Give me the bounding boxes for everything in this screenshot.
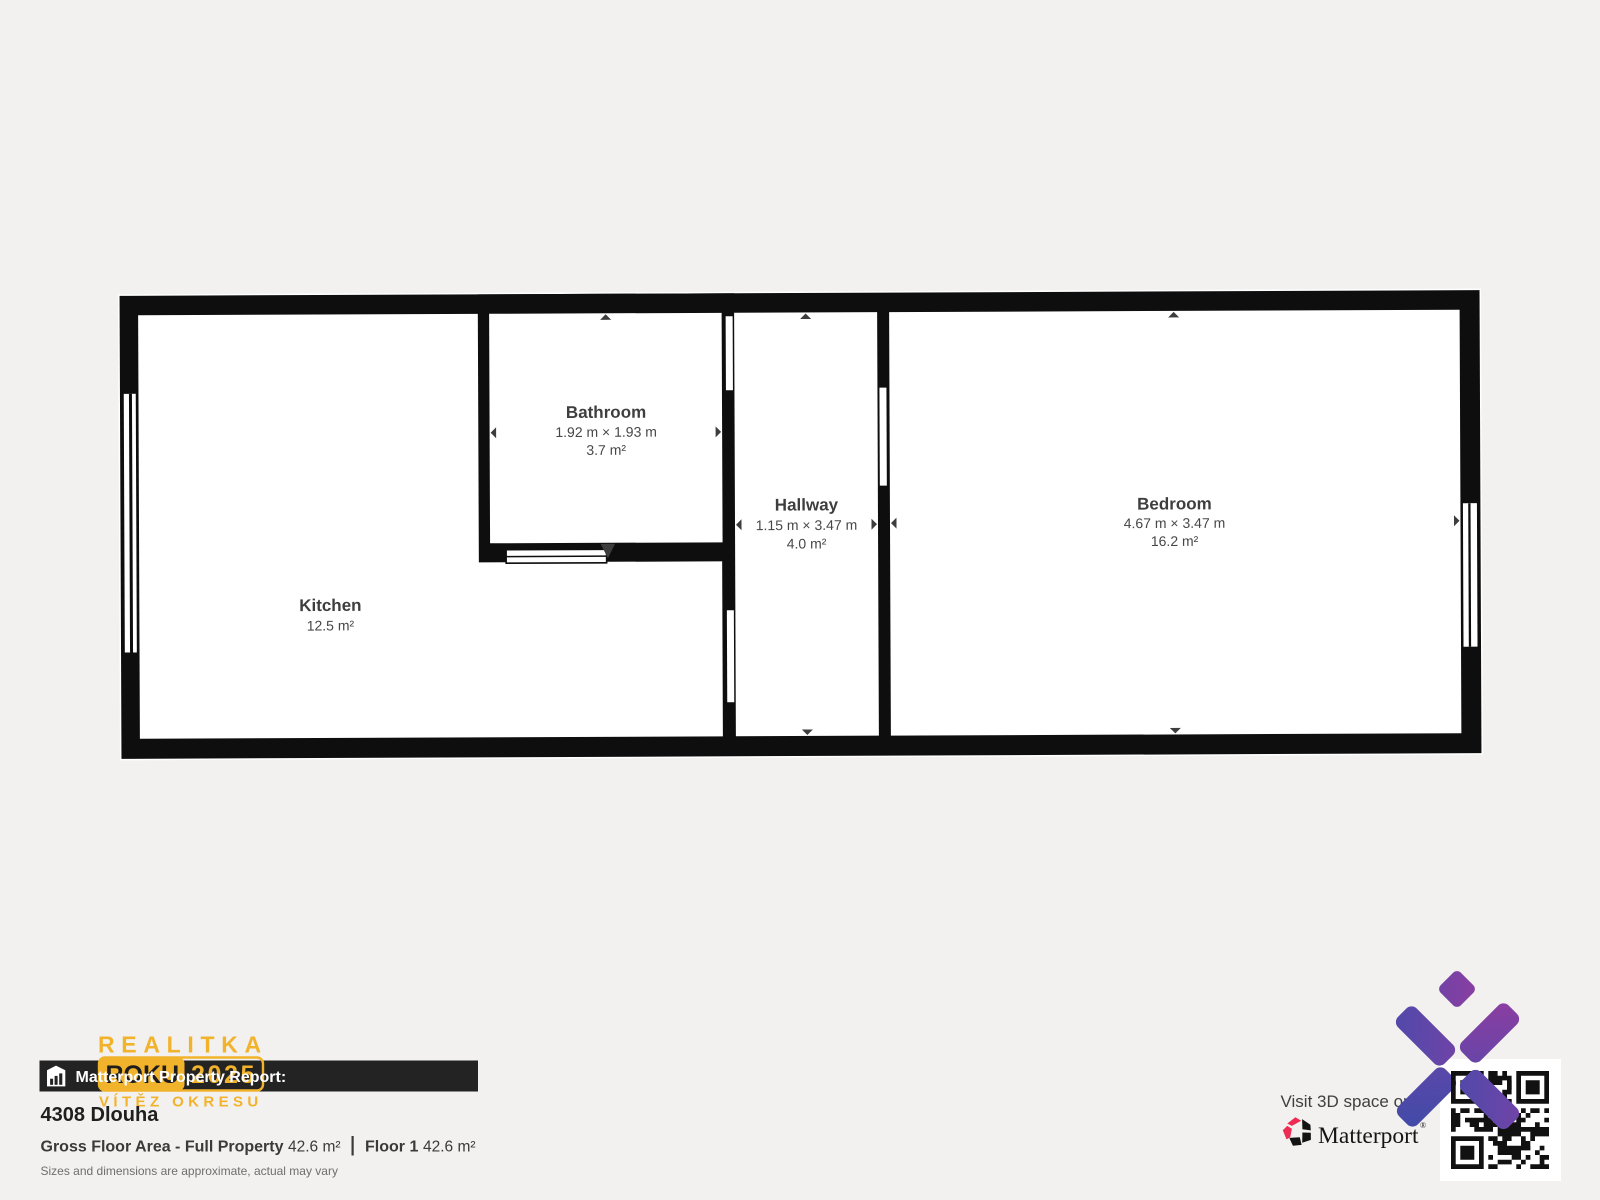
svg-text:®: ® — [1420, 1121, 1426, 1130]
svg-text:4308 Dlouha: 4308 Dlouha — [41, 1104, 160, 1126]
svg-text:12.5 m²: 12.5 m² — [307, 617, 355, 633]
svg-text:1.15 m × 3.47 m: 1.15 m × 3.47 m — [756, 517, 858, 533]
svg-text:4.67 m × 3.47 m: 4.67 m × 3.47 m — [1124, 515, 1226, 531]
svg-text:3.7 m²: 3.7 m² — [586, 442, 626, 458]
svg-text:Visit 3D space on: Visit 3D space on — [1281, 1092, 1413, 1111]
svg-text:4.0 m²: 4.0 m² — [787, 535, 827, 551]
svg-text:Sizes and dimensions are appro: Sizes and dimensions are approximate, ac… — [41, 1164, 338, 1178]
svg-text:Hallway: Hallway — [775, 495, 839, 514]
svg-text:Gross Floor Area - Full Proper: Gross Floor Area - Full Property — [41, 1139, 284, 1156]
svg-text:Bathroom: Bathroom — [566, 403, 646, 422]
svg-text:Matterport Property Report:: Matterport Property Report: — [76, 1069, 287, 1086]
svg-text:Matterport: Matterport — [1318, 1123, 1419, 1149]
svg-text:Bedroom: Bedroom — [1137, 494, 1212, 513]
svg-text:Kitchen: Kitchen — [299, 596, 361, 615]
svg-text:42.6 m²: 42.6 m² — [288, 1139, 341, 1156]
svg-text:REALITKA: REALITKA — [98, 1032, 268, 1058]
svg-text:42.6 m²: 42.6 m² — [423, 1139, 476, 1156]
svg-text:16.2 m²: 16.2 m² — [1151, 533, 1199, 549]
svg-text:1.92 m × 1.93 m: 1.92 m × 1.93 m — [555, 424, 657, 440]
svg-text:Floor 1: Floor 1 — [365, 1139, 418, 1156]
